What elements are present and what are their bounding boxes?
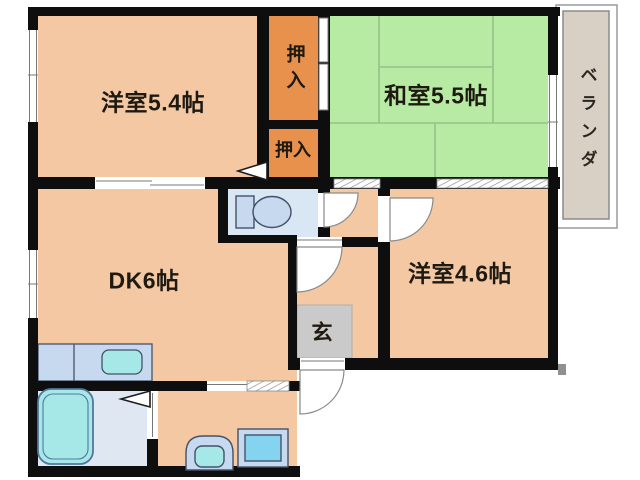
room-label-western2: 洋室4.6帖 [408,263,512,286]
washing-machine-icon [238,429,288,467]
floorplan-drawing [0,0,640,480]
room-label-veranda: ベランダ [579,66,596,178]
room-label-dk: DK6帖 [108,270,179,293]
room-label-japanese: 和室5.5帖 [384,85,488,108]
washbasin-icon [186,436,233,470]
toilet-icon [236,196,291,228]
room-label-entrance: 玄 [312,323,333,344]
wall-shadow [558,364,566,375]
kitchen-counter-icon [38,344,152,381]
room-label-western1: 洋室5.4帖 [101,92,205,115]
room-label-closet-lower: 押入 [275,141,311,159]
room-label-closet-upper: 押入 [285,44,304,96]
kitchen-sink-icon [102,350,142,374]
floorplan: 洋室5.4帖 押入 押入 和室5.5帖 ベランダ DK6帖 玄 洋室4.6帖 [0,0,640,480]
bathtub-icon [38,389,93,464]
